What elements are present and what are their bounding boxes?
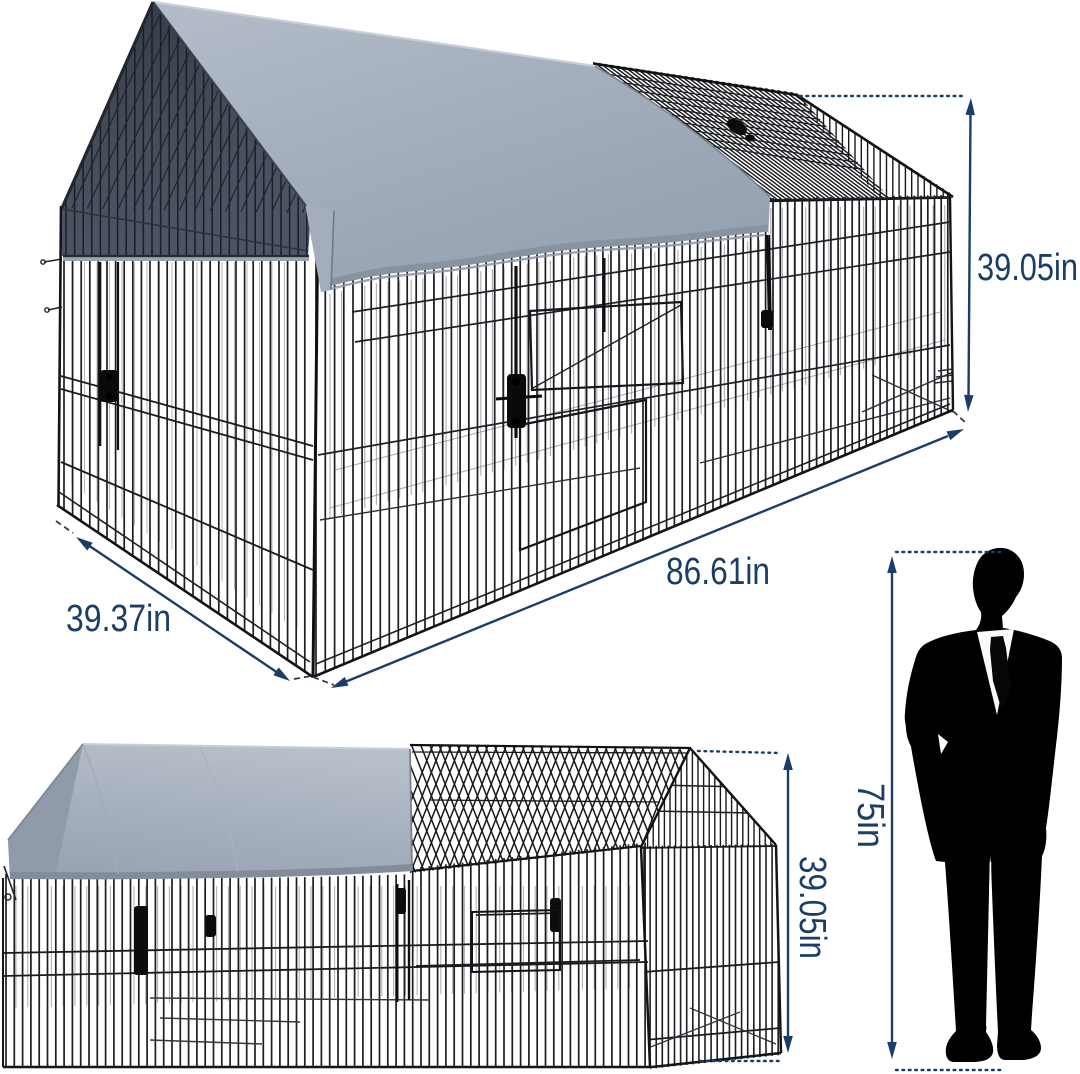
svg-text:39.05in: 39.05in <box>791 856 833 959</box>
svg-text:86.61in: 86.61in <box>666 551 770 593</box>
svg-text:75in: 75in <box>849 783 891 848</box>
svg-text:39.37in: 39.37in <box>66 598 171 640</box>
svg-text:39.05in: 39.05in <box>977 247 1078 289</box>
